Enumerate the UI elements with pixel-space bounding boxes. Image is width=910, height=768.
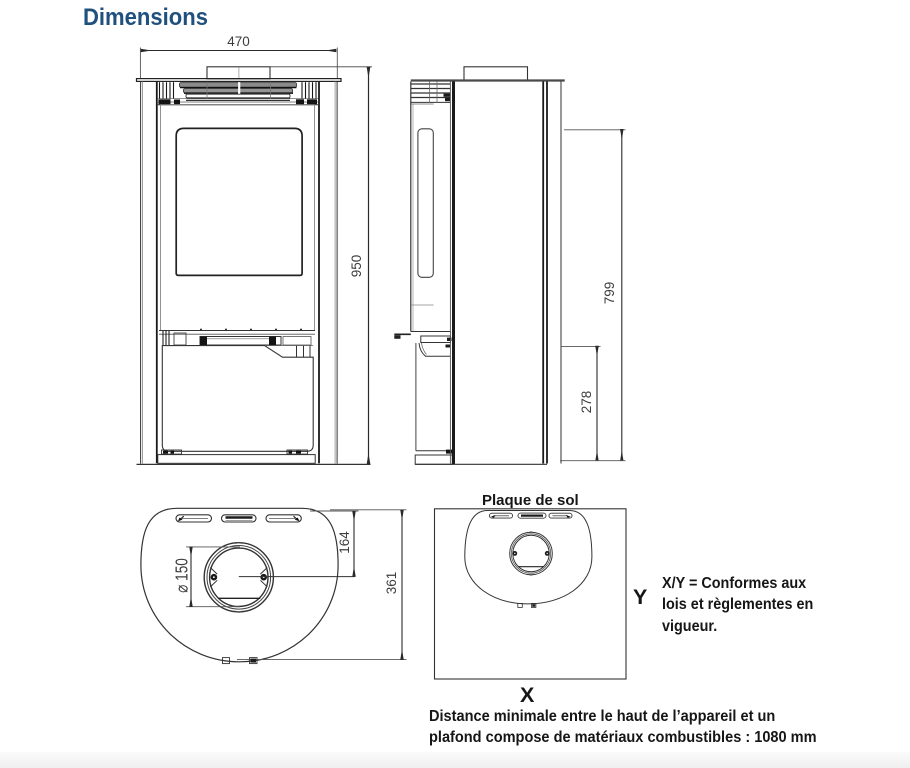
svg-text:361: 361 — [384, 572, 399, 595]
svg-text:164: 164 — [337, 531, 352, 554]
svg-text:⌀ 150: ⌀ 150 — [173, 558, 192, 593]
svg-text:470: 470 — [227, 34, 250, 49]
svg-text:278: 278 — [579, 391, 594, 414]
svg-text:799: 799 — [602, 282, 617, 305]
svg-text:950: 950 — [349, 255, 364, 278]
